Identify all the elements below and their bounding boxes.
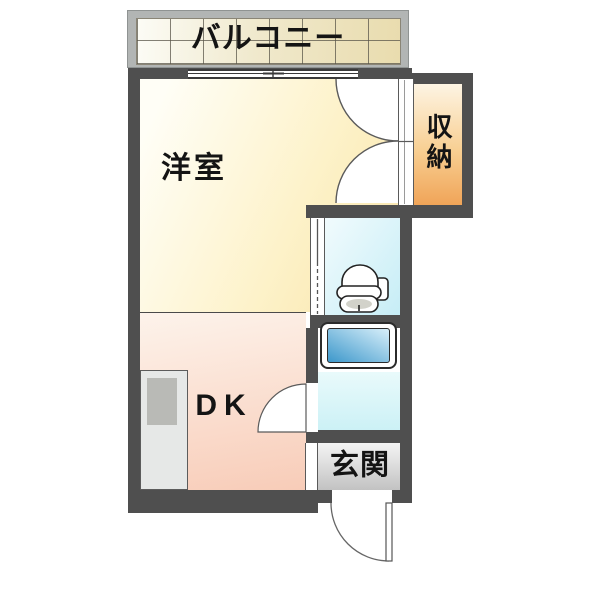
storage-label: 収納 — [425, 113, 451, 173]
wall-bath-bottom — [306, 430, 412, 443]
sliding-window-icon — [188, 69, 358, 79]
wall-storage-right — [462, 73, 473, 218]
entrance-door-swing-icon — [331, 503, 392, 561]
entrance-door-gap — [332, 490, 392, 503]
dk-label: DK — [195, 391, 252, 421]
genkan-opening-strip — [305, 443, 318, 490]
bathtub-water — [327, 328, 390, 363]
balcony-label: バルコニー — [191, 24, 345, 54]
toilet-door-strip — [310, 218, 325, 315]
kitchen-sink-icon — [147, 378, 177, 425]
wall-left — [128, 68, 140, 513]
western-room-label: 洋室 — [161, 154, 227, 184]
wall-bath-left-upper — [306, 328, 318, 383]
bath-floor — [318, 372, 400, 430]
room-toilet — [325, 218, 402, 315]
wall-middle — [306, 205, 473, 218]
entrance-label: 玄関 — [330, 452, 390, 481]
closet-door-strip — [398, 79, 414, 205]
wall-bottom-left — [128, 490, 318, 513]
bath-door-gap — [306, 383, 318, 432]
floor-plan: バルコニー 洋室 収納 DK 玄関 — [0, 0, 600, 600]
wall-right — [400, 205, 412, 503]
